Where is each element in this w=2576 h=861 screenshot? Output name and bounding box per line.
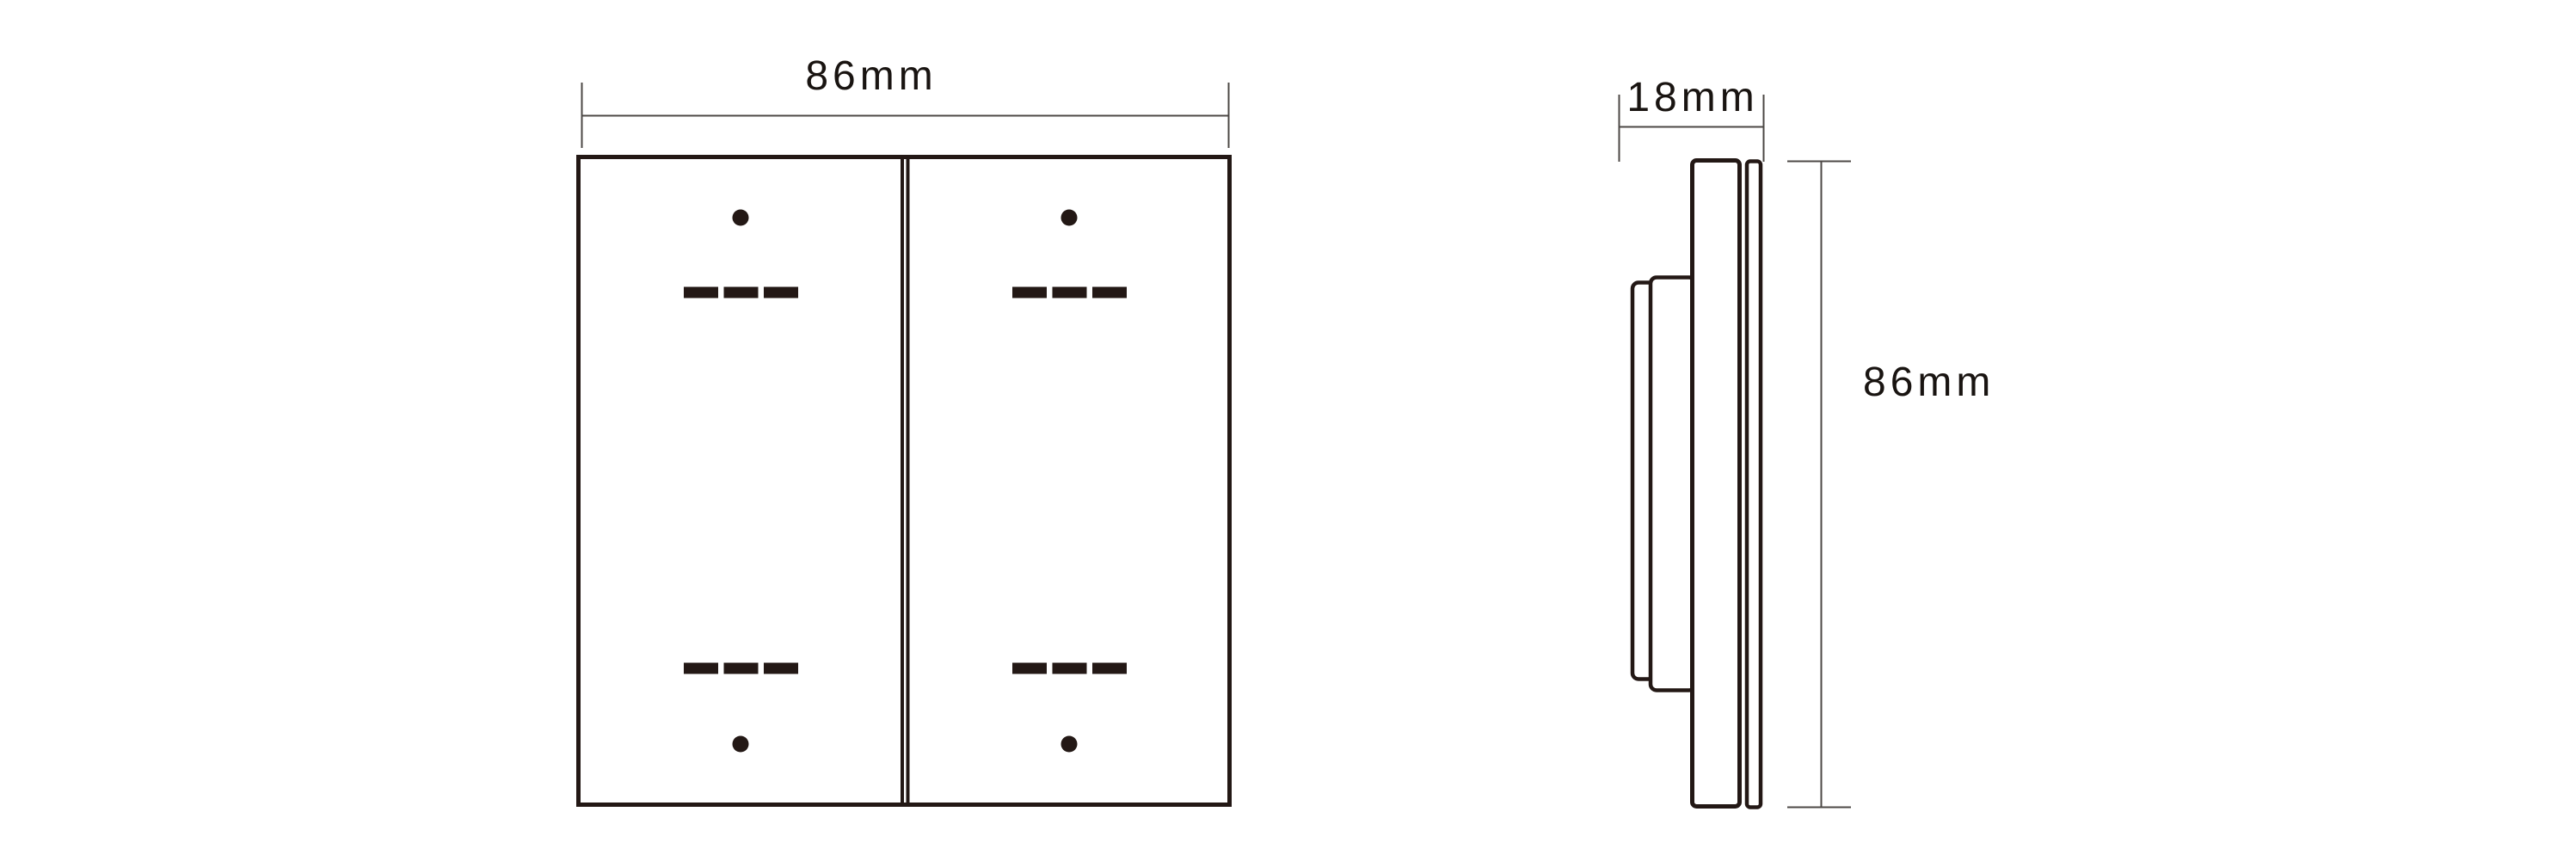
side-body <box>1693 161 1740 807</box>
side-height-dimension <box>1787 162 1851 808</box>
left-rocker-top-dot <box>733 210 749 226</box>
right-rocker-top-dot <box>1061 210 1078 226</box>
side-front-plate <box>1747 162 1761 808</box>
dash-mark <box>1012 287 1047 298</box>
switch-dimension-drawing <box>0 0 2576 861</box>
dash-mark <box>1092 663 1127 674</box>
left-rocker-bottom-dash-row <box>684 663 798 674</box>
left-rocker-top-dash-row <box>684 287 798 298</box>
right-rocker-top-dash-row <box>1012 287 1127 298</box>
rear-mount-step-inner <box>1651 278 1695 691</box>
dash-mark <box>1053 287 1087 298</box>
diagram-page: 86mm 18mm 86mm <box>0 0 2576 861</box>
side-view <box>1632 161 1761 808</box>
side-depth-dimension-label: 18mm <box>1626 77 1758 119</box>
front-view <box>579 157 1230 805</box>
dash-mark <box>724 663 759 674</box>
dash-mark <box>724 287 759 298</box>
dash-mark <box>764 663 798 674</box>
right-rocker-bottom-dot <box>1061 736 1078 753</box>
side-height-dimension-label: 86mm <box>1863 362 1995 403</box>
dash-mark <box>684 663 718 674</box>
dash-mark <box>1012 663 1047 674</box>
dash-mark <box>684 287 718 298</box>
dash-mark <box>1092 287 1127 298</box>
dash-mark <box>764 287 798 298</box>
dash-mark <box>1053 663 1087 674</box>
left-rocker-bottom-dot <box>733 736 749 753</box>
right-rocker-bottom-dash-row <box>1012 663 1127 674</box>
front-width-dimension-label: 86mm <box>805 56 937 97</box>
